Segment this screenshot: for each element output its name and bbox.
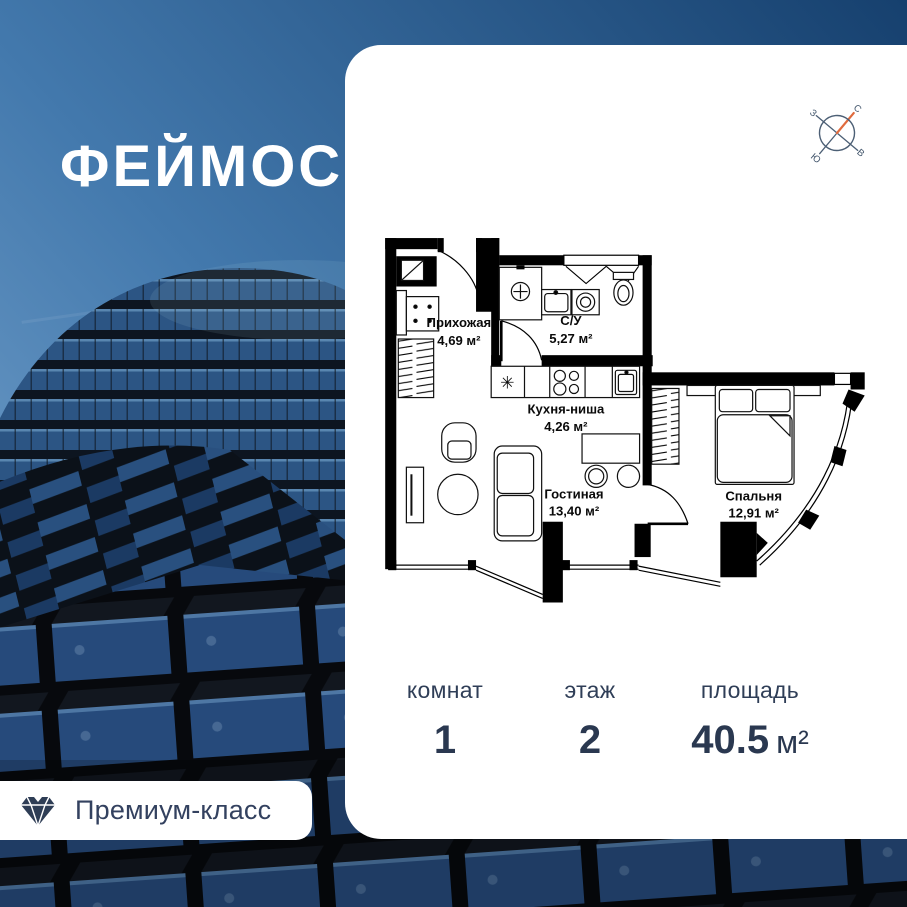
stat-floor-label: этаж: [565, 677, 616, 704]
stat-area: площадь 40.5м²: [655, 677, 845, 760]
stat-area-label: площадь: [701, 677, 799, 704]
premium-class-badge: Премиум-класс: [0, 781, 312, 840]
diamond-icon: [18, 793, 58, 829]
stat-floor-value: 2: [579, 720, 601, 760]
stat-area-unit: м²: [776, 724, 809, 760]
compass-south-label: Ю: [808, 151, 823, 166]
stat-rooms: комнат 1: [365, 677, 525, 760]
stat-rooms-value: 1: [434, 720, 456, 760]
room-name-living: Гостиная: [544, 487, 603, 502]
bedroom-furniture: [652, 385, 821, 484]
room-name-kitchen: Кухня-ниша: [527, 402, 605, 417]
listing-screenshot: ФЕЙМОС С З Ю В: [0, 0, 907, 907]
kitchen-sink-symbol: ✳: [500, 372, 514, 392]
living-room-furniture: [406, 423, 639, 541]
room-area-kitchen: 4,26 м²: [544, 419, 588, 434]
compass-icon: С З Ю В: [795, 91, 879, 175]
compass-west-label: З: [807, 107, 819, 119]
premium-class-label: Премиум-класс: [75, 795, 271, 826]
brand-logo: ФЕЙМОС: [60, 138, 343, 196]
room-area-bathroom: 5,27 м²: [549, 331, 593, 346]
bathroom-fixtures: [499, 265, 633, 320]
room-area-bedroom: 12,91 м²: [728, 506, 779, 521]
stat-floor: этаж 2: [525, 677, 655, 760]
stat-rooms-label: комнат: [407, 677, 483, 704]
room-name-hallway: Прихожая: [427, 315, 492, 330]
room-name-bedroom: Спальня: [725, 489, 782, 504]
stats-row: комнат 1 этаж 2 площадь 40.5м²: [365, 677, 845, 760]
room-area-living: 13,40 м²: [549, 504, 600, 519]
listing-card[interactable]: С З Ю В: [345, 45, 907, 839]
floor-plan: ✳: [378, 232, 883, 656]
room-area-hallway: 4,69 м²: [437, 333, 481, 348]
room-name-bathroom: С/У: [560, 313, 582, 328]
stat-area-value: 40.5м²: [691, 720, 809, 760]
